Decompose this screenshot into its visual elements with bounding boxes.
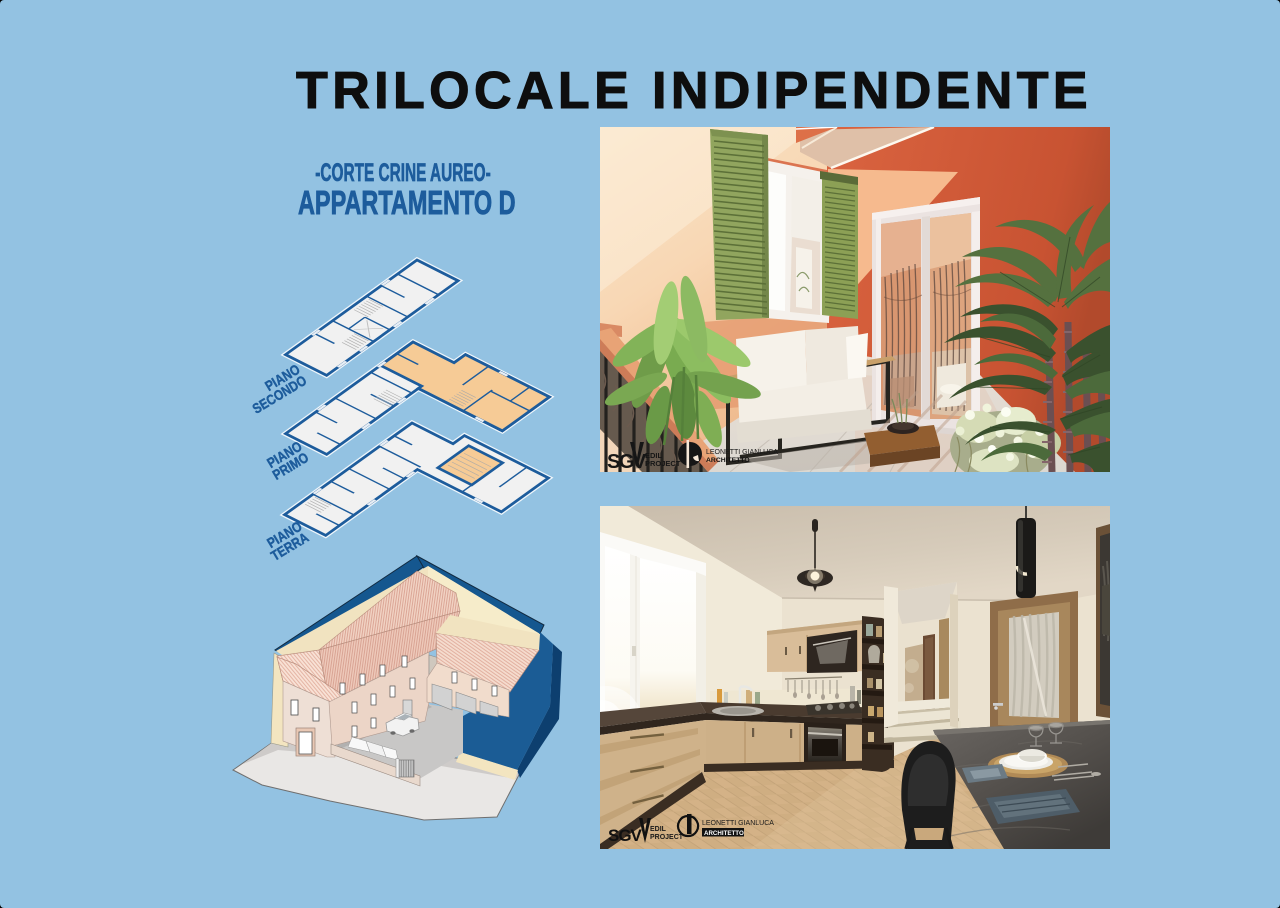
svg-text:PIANOSECONDO: PIANOSECONDO (243, 361, 310, 417)
svg-text:EDIL: EDIL (650, 826, 667, 833)
svg-text:ARCHITETTO: ARCHITETTO (706, 457, 750, 464)
svg-text:SGV: SGV (608, 826, 643, 845)
svg-text:SGV: SGV (607, 451, 647, 472)
svg-text:LEONETTI GIANLUCA: LEONETTI GIANLUCA (702, 820, 774, 827)
svg-text:ARCHITETTO: ARCHITETTO (704, 830, 744, 837)
svg-text:LEONETTI GIANLUCA: LEONETTI GIANLUCA (706, 449, 778, 456)
svg-text:PROJECT: PROJECT (645, 459, 681, 468)
svg-text:PROJECT: PROJECT (650, 834, 684, 841)
